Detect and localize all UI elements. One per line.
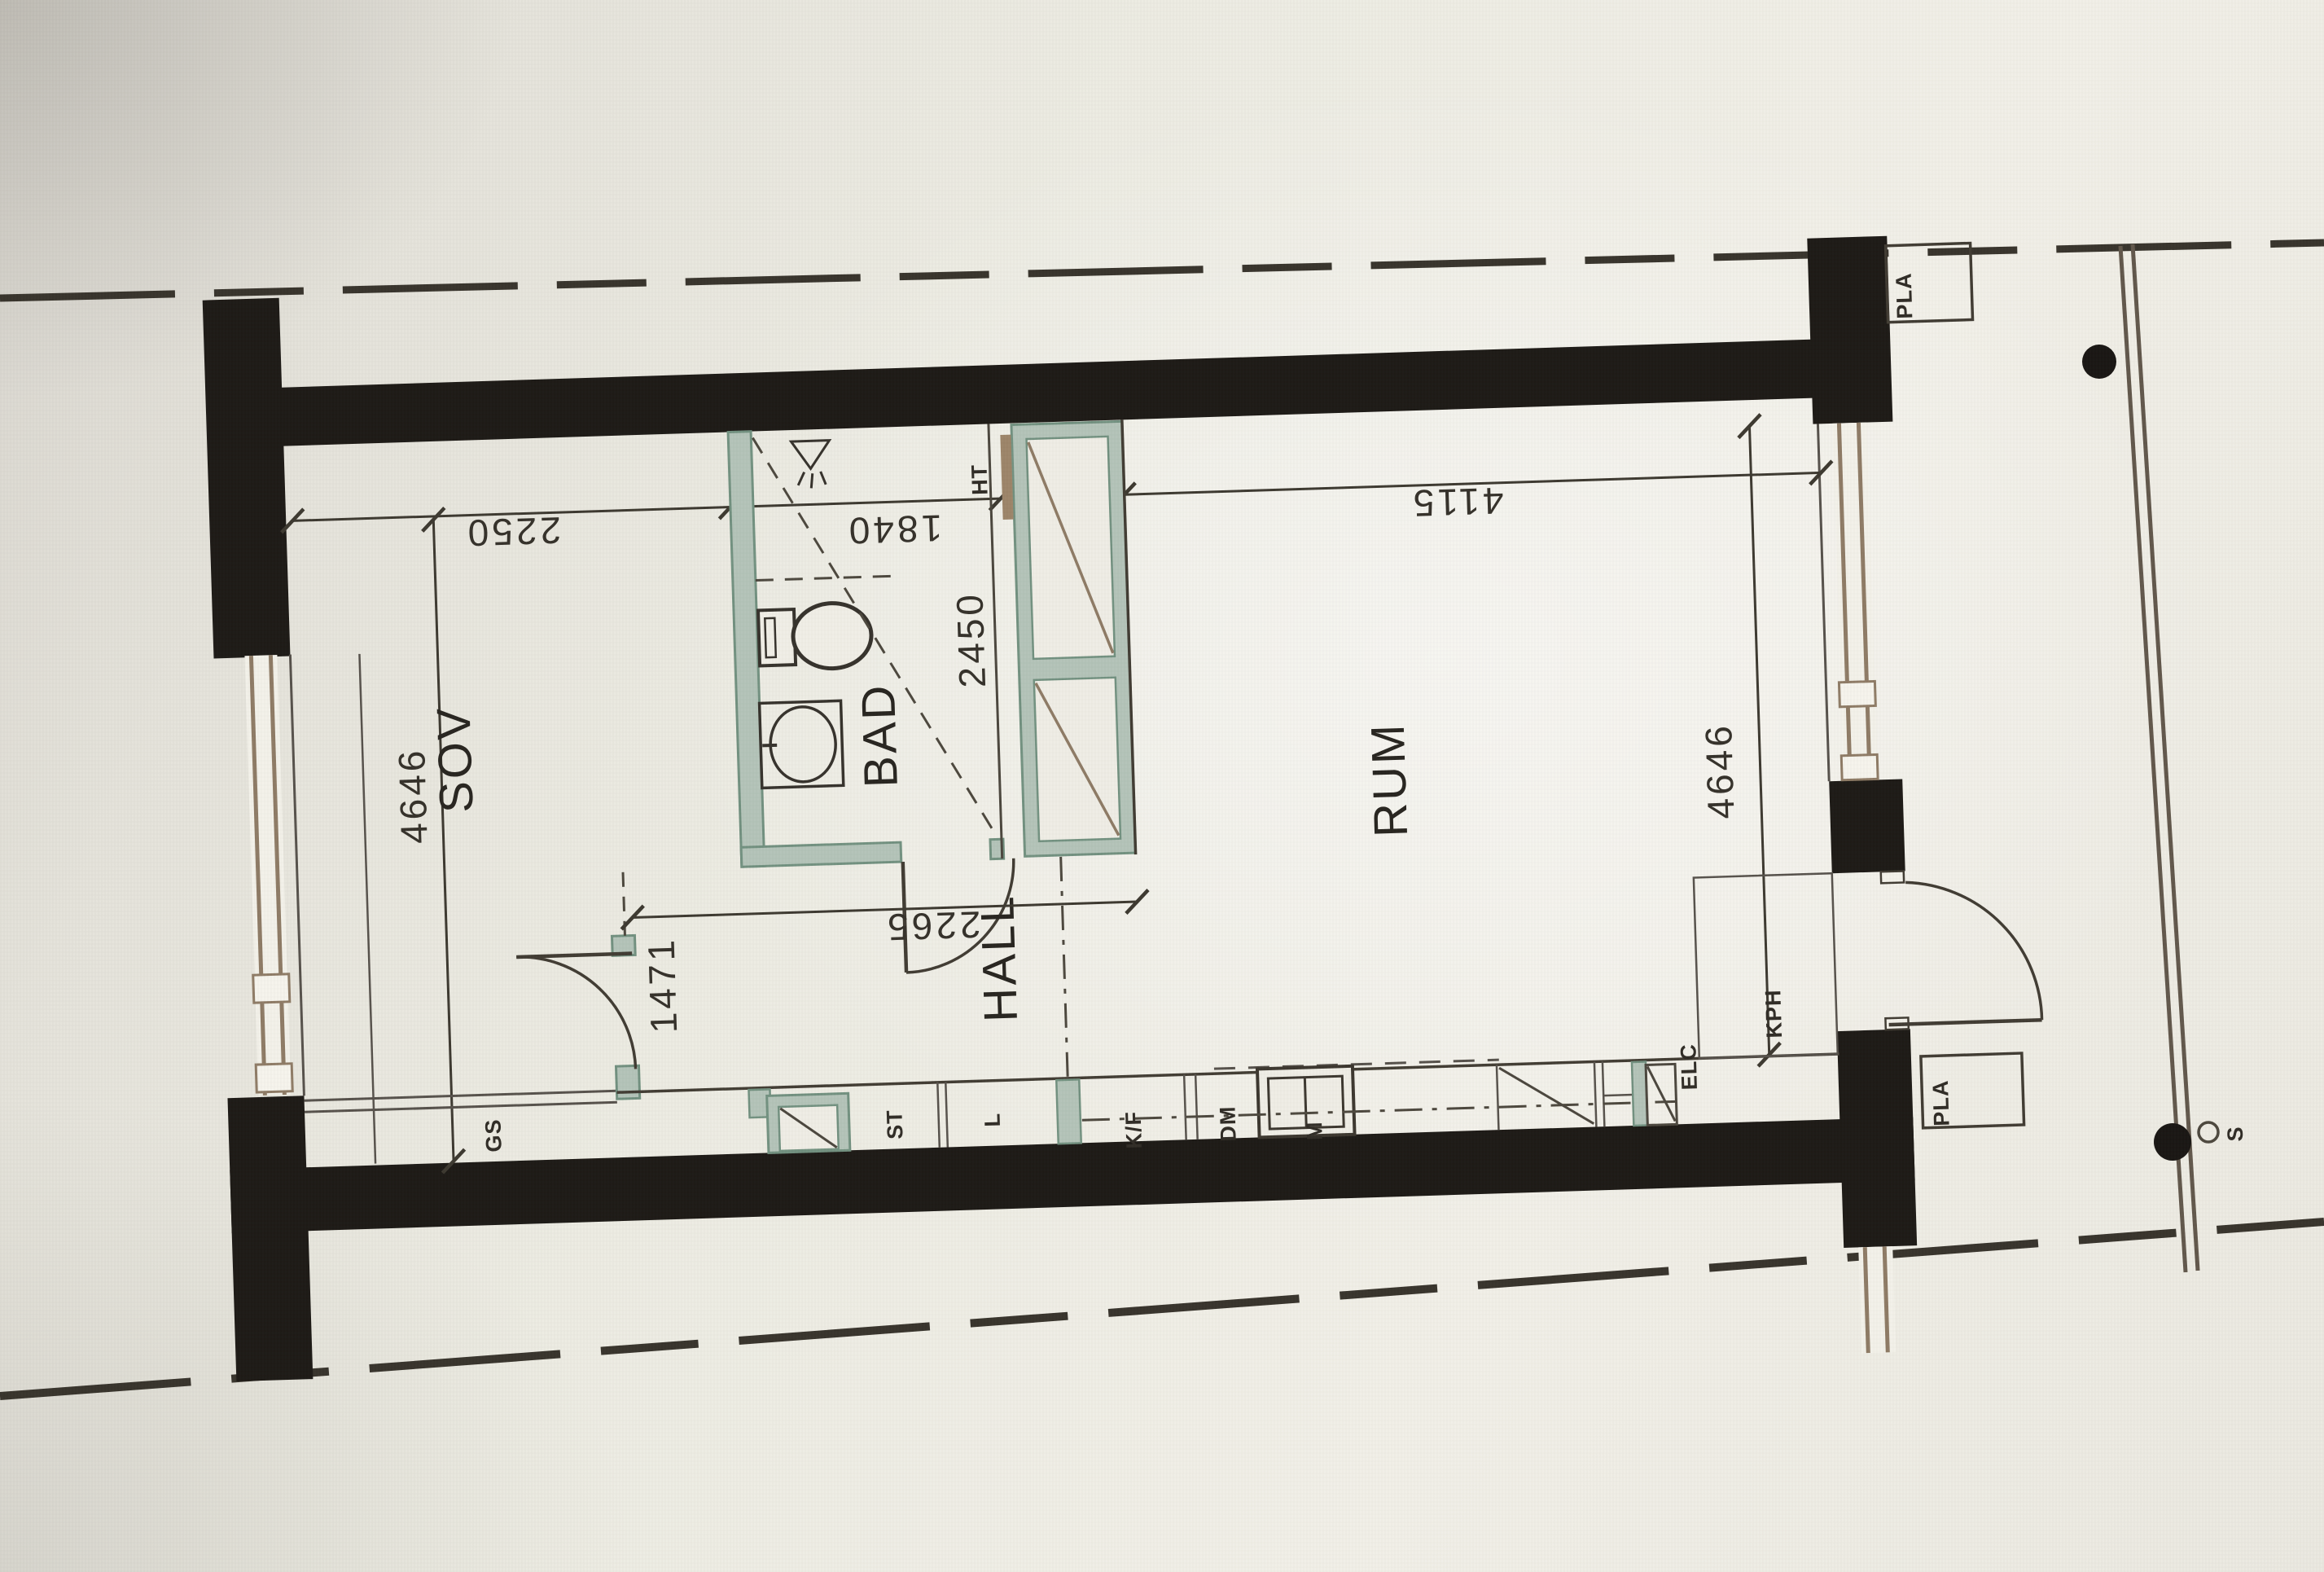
dim-bad-depth: 2450 [948,591,993,688]
wall-right-upper-column [1807,236,1892,424]
label-m: M [1302,1121,1327,1140]
label-l: L [980,1113,1006,1127]
window-right-upper [1818,423,1878,782]
label-pla-top: PLA [1892,272,1918,319]
dim-rum-width: 4115 [1410,480,1504,525]
label-elc: ELC [1676,1043,1702,1091]
door-arc-entrance [1881,867,2042,1030]
label-kph: KPH [1761,989,1787,1038]
room-label-rum: RUM [1362,722,1418,838]
dim-hall-length: 2265 [884,903,981,949]
floor-plan: S [0,0,2324,1572]
label-ht: HT [967,463,992,495]
dim-hall-opening: 1471 [640,936,686,1034]
band-centerline [1082,1101,1677,1120]
dimension-right-depth: 4646 [1687,415,1781,1068]
wall-right-mid [1829,779,1905,873]
boundary-dashed-bottom [0,1222,2324,1396]
boundary-dashed-top [0,243,2324,298]
pla-box-bottom: PLA [1921,1053,2024,1128]
section-marker-circle [2199,1122,2218,1142]
section-marker-label: S [2223,1126,2247,1141]
column-dot-top [2082,345,2116,379]
room-label-bad: BAD [852,683,908,788]
wall-right-lower [1837,1029,1917,1248]
hall-rum-divider [1061,857,1068,1080]
dimension-left-depth: 4646 [355,508,466,1175]
label-dm: DM [1215,1105,1240,1142]
bad-rum-closet [989,419,1136,858]
door-arc-sov [516,954,635,1073]
dim-bad-width: 1840 [845,507,943,552]
hall-closet [767,1093,850,1153]
screen-photo: S [0,0,2324,1572]
window-right-lower [1858,1246,1896,1353]
window-left [243,655,304,1098]
wall-left-lower [227,1096,313,1381]
shower-icon [791,441,831,489]
dimension-hall-length: 2265 [620,890,1150,957]
wardrobe-diagonal [1499,1065,1594,1127]
dim-sov-width: 2250 [464,509,562,555]
column-dot-bottom [2154,1123,2191,1161]
label-gs: GS [480,1118,506,1153]
dim-depth-right: 4646 [1697,722,1743,820]
room-label-sov: SOV [427,705,483,814]
toilet-icon [758,602,872,670]
sov-closet-partition [305,1091,617,1112]
section-line [2120,244,2198,1272]
elc-cabinet [1646,1064,1677,1125]
sink-icon [760,700,844,788]
label-st: ST [882,1109,907,1139]
label-pla-bottom: PLA [1928,1079,1954,1126]
label-kf: K/F [1121,1111,1147,1149]
wet-wall-stub-kitchen [1056,1079,1081,1144]
wall-left-upper-column [203,298,291,659]
